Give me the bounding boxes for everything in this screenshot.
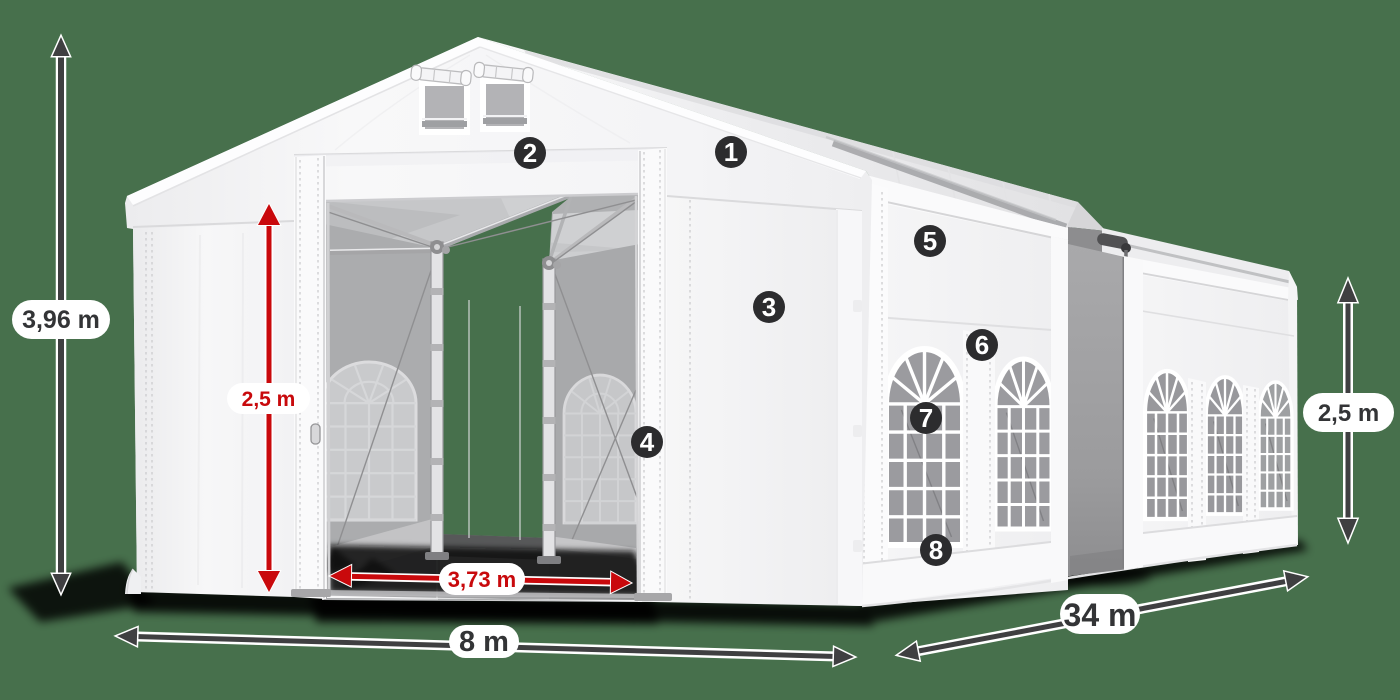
svg-text:8 m: 8 m	[459, 626, 509, 658]
svg-text:4: 4	[640, 427, 655, 457]
svg-text:1: 1	[724, 137, 738, 167]
svg-text:6: 6	[975, 330, 989, 360]
svg-text:2,5 m: 2,5 m	[242, 388, 296, 411]
svg-text:2: 2	[523, 138, 537, 168]
svg-text:3,96 m: 3,96 m	[22, 306, 100, 334]
svg-text:2,5 m: 2,5 m	[1318, 400, 1379, 427]
svg-text:34 m: 34 m	[1064, 597, 1137, 633]
svg-text:7: 7	[919, 403, 933, 433]
svg-text:3,73 m: 3,73 m	[448, 567, 517, 592]
svg-text:8: 8	[929, 535, 943, 565]
svg-text:5: 5	[923, 226, 937, 256]
svg-text:3: 3	[762, 292, 776, 322]
